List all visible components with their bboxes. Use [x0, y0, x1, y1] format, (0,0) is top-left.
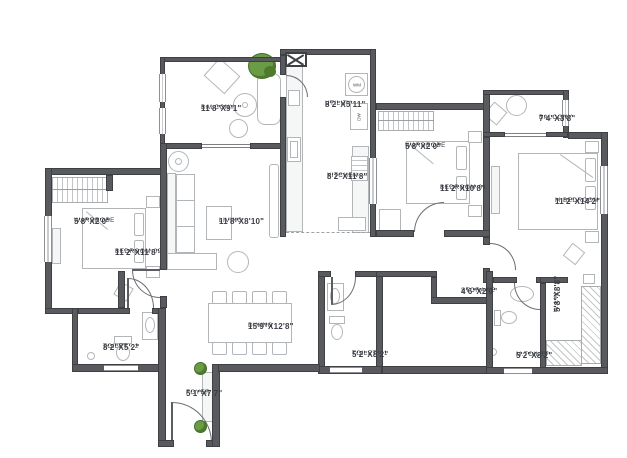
dresser	[52, 228, 61, 264]
wall	[493, 277, 517, 283]
wall	[546, 132, 568, 137]
bedroom-01-door-arc	[414, 202, 444, 232]
room-dims: 8'2"X5'11"	[325, 100, 366, 110]
room-dims: 5'8"X2'0"	[405, 142, 441, 152]
window	[369, 158, 377, 204]
balcony-bench	[257, 73, 281, 125]
room-dims: 5'8"X2'0"	[74, 217, 110, 227]
plant	[194, 420, 207, 433]
window	[504, 368, 532, 374]
toilet-1-wc-tank	[329, 316, 345, 324]
window	[600, 166, 608, 214]
dining-chair	[272, 342, 287, 355]
dresser	[379, 209, 401, 231]
dining-chair	[212, 291, 227, 304]
wardrobe-unit	[378, 111, 434, 131]
shaft-box	[285, 52, 307, 67]
wall	[370, 49, 376, 237]
wall	[158, 440, 174, 447]
sofa-seats	[176, 174, 195, 254]
wall	[118, 271, 125, 308]
room-dims: 11'8"X9'1"	[201, 104, 242, 114]
chair	[563, 243, 585, 265]
wall	[431, 297, 492, 304]
wall	[444, 230, 490, 237]
master-bedroom-door-arc	[490, 243, 516, 270]
sofa-chaise	[167, 253, 217, 270]
wall	[218, 364, 320, 372]
wall	[318, 271, 325, 374]
toilet-2-shower	[87, 352, 95, 360]
master-toilet-wc-tank	[494, 310, 501, 326]
wall	[483, 90, 568, 95]
dining-chair	[252, 291, 267, 304]
wall	[72, 308, 78, 370]
wall	[483, 90, 490, 138]
room-dims: 4'6"X2'0"	[461, 287, 497, 297]
dining-chair	[212, 342, 227, 355]
wall	[376, 103, 490, 110]
wall	[45, 168, 167, 175]
room-dims: 15'9"X12'8"	[248, 322, 294, 332]
wardrobe-unit	[52, 177, 108, 203]
room-dims: 11'2"X10'8"	[440, 184, 485, 194]
balcony-utility-door-arc	[286, 75, 308, 97]
master-toilet-door-arc	[514, 283, 540, 310]
kitchen-opening-dashed	[286, 232, 370, 233]
toilet-2-basin	[145, 317, 155, 333]
round-table-center	[242, 102, 248, 108]
kitchen-sink-basin	[290, 141, 298, 158]
wall	[483, 237, 490, 245]
fridge	[338, 217, 366, 231]
toilet-1-door-arc	[331, 277, 356, 305]
wall	[212, 364, 220, 447]
pillow	[585, 158, 596, 182]
room-dims: 5'1"X7'7"	[186, 389, 222, 399]
sofa-back	[167, 173, 176, 255]
tv-console	[269, 164, 279, 238]
dining-chair	[252, 342, 267, 355]
wall	[106, 175, 113, 191]
window	[44, 216, 52, 262]
window	[159, 108, 166, 134]
lounge-chair	[204, 58, 241, 95]
nightstand	[468, 205, 482, 217]
dining-chair	[272, 291, 287, 304]
dresser	[491, 166, 500, 214]
plant	[194, 362, 207, 375]
window	[159, 74, 166, 102]
wall	[382, 366, 493, 374]
wall	[376, 230, 414, 237]
dishwasher-label: DW	[357, 113, 362, 121]
ceiling-fan-hub	[175, 158, 182, 165]
wall	[160, 57, 286, 62]
wall	[158, 308, 166, 447]
pillow	[134, 213, 144, 236]
wall	[160, 296, 167, 308]
wall	[376, 271, 437, 277]
window	[104, 365, 138, 371]
plant	[264, 66, 276, 77]
wardrobe-rod	[52, 189, 108, 190]
floor-plan: WM DW	[0, 0, 627, 458]
washing-machine-label: WM	[353, 83, 361, 88]
room-dims: 5'2"X8'2"	[516, 351, 552, 361]
nightstand	[146, 196, 160, 208]
wall	[160, 57, 165, 149]
stool	[583, 274, 595, 284]
wall	[280, 97, 286, 237]
toilet-1-wc	[331, 324, 343, 340]
window	[330, 367, 362, 373]
dining-chair	[232, 342, 247, 355]
room-dims: 7'4"X3'8"	[539, 114, 575, 124]
sliding-door	[505, 133, 546, 137]
dining-chair	[232, 291, 247, 304]
pillow	[456, 146, 467, 170]
wall	[78, 308, 130, 314]
room-dims: 5'2"X8'2"	[352, 350, 388, 360]
nightstand	[585, 141, 599, 153]
stool	[229, 119, 248, 138]
room-dims: 5'8"X8'8"	[553, 276, 563, 312]
wardrobe-unit	[581, 286, 601, 364]
room-dims: 8'2"X11'8"	[327, 172, 368, 182]
round-table	[506, 95, 527, 116]
armchair	[227, 251, 249, 273]
sliding-door	[202, 144, 250, 148]
master-toilet-wc	[501, 311, 517, 324]
nightstand	[468, 131, 482, 143]
nightstand	[585, 231, 599, 243]
wall	[318, 271, 331, 277]
room-dims: 11'8"X8'10"	[219, 217, 264, 227]
room-dims: 8'2"X5'2"	[103, 343, 139, 353]
wardrobe-rod	[378, 120, 434, 121]
room-dims: 11'2"X11'8"	[115, 248, 160, 258]
room-dims: 11'2"X14'2"	[555, 197, 600, 207]
